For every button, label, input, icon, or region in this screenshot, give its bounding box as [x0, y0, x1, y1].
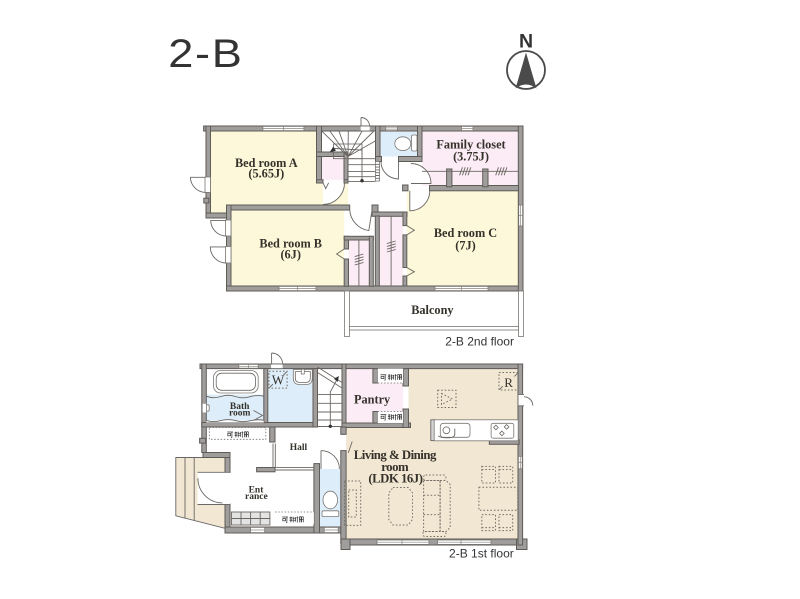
svg-text:(5.65J): (5.65J) [248, 167, 284, 181]
svg-text:2-B 2nd floor: 2-B 2nd floor [445, 335, 514, 349]
svg-text:Balcony: Balcony [411, 303, 454, 317]
svg-text:rance: rance [245, 492, 268, 502]
svg-text:room: room [229, 409, 251, 419]
svg-text:(LDK 16J): (LDK 16J) [368, 471, 422, 485]
svg-text:Hall: Hall [290, 443, 308, 453]
svg-text:2-B 1st floor: 2-B 1st floor [449, 547, 514, 561]
svg-text:W: W [272, 373, 285, 388]
svg-text:N: N [519, 31, 533, 53]
svg-text:(3.75J): (3.75J) [453, 149, 489, 163]
svg-text:R: R [504, 375, 513, 390]
svg-text:2-B: 2-B [168, 31, 243, 76]
svg-text:(6J): (6J) [280, 248, 301, 262]
svg-text:(7J): (7J) [455, 238, 476, 252]
svg-text:Pantry: Pantry [354, 392, 391, 406]
